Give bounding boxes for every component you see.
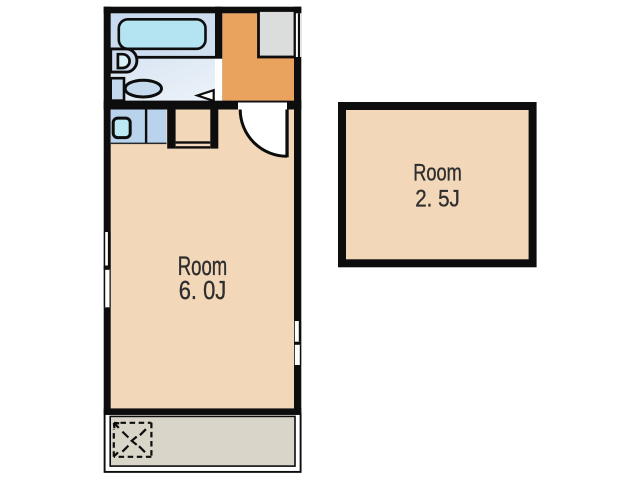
svg-text:6. 0J: 6. 0J bbox=[179, 275, 227, 305]
svg-text:Room: Room bbox=[413, 160, 462, 187]
svg-text:2. 5J: 2. 5J bbox=[415, 185, 460, 212]
